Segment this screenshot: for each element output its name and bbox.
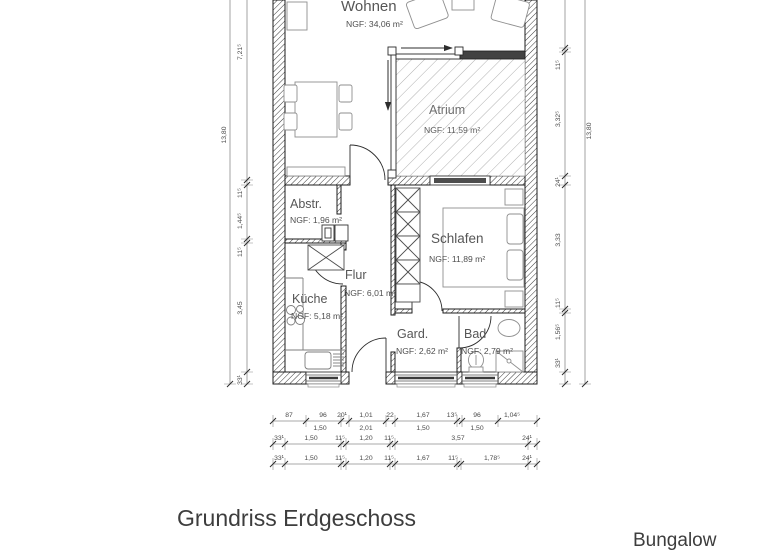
outer-wall-bottom <box>386 372 395 384</box>
floor-plan-drawing: 87 96 20¹ 1,01 22 1,67 13⁵ 96 1,04⁵ 1,50… <box>0 0 768 560</box>
kitchen-window <box>306 372 341 387</box>
washbasin <box>498 320 520 337</box>
dim-label: 24¹ <box>522 435 533 442</box>
room-area-abstellraum: NGF: 1,96 m² <box>290 215 342 225</box>
dim-label: 1,56⁵ <box>555 324 562 340</box>
room-area-schlafen: NGF: 11,89 m² <box>429 254 485 264</box>
dim-label: 1,04⁵ <box>504 412 520 419</box>
dim-label: 1,44⁵ <box>237 213 244 229</box>
room-label-garderobe: Gard. <box>397 327 428 341</box>
dim-label: 11⁵ <box>237 188 244 198</box>
atrium-fixed-glazing <box>460 51 525 59</box>
sideboard <box>287 2 307 30</box>
outer-wall-bottom <box>273 372 306 384</box>
dim-label: 3,32⁵ <box>555 111 562 127</box>
pillow <box>507 214 523 244</box>
armchair <box>490 0 530 28</box>
garderobe-window <box>395 372 457 387</box>
room-area-garderobe: NGF: 2,62 m² <box>396 346 448 356</box>
room-label-atrium: Atrium <box>429 103 465 117</box>
room-area-kueche: NGF: 5,18 m² <box>291 311 343 321</box>
chair <box>284 85 297 102</box>
bedroom-window-glass <box>434 178 486 183</box>
dim-label: 11⁵ <box>384 455 394 462</box>
dim-label: 22 <box>386 412 394 419</box>
dim-label: 11⁵ <box>335 455 345 462</box>
outer-wall-left <box>273 0 285 384</box>
door-entrance <box>352 338 386 372</box>
dim-label: 1,67 <box>416 412 429 419</box>
dim-label: 33¹ <box>274 435 285 442</box>
interior-wall <box>395 309 412 313</box>
atrium-hatch <box>396 59 525 176</box>
dim-label: 96 <box>473 412 481 419</box>
room-label-bad: Bad <box>464 327 486 341</box>
dim-label: 3,45 <box>237 301 244 314</box>
lowboard <box>287 167 345 176</box>
room-area-wohnen: NGF: 34,06 m² <box>346 19 403 29</box>
dim-label: 1,67 <box>416 455 429 462</box>
side-table <box>452 0 474 10</box>
dim-label: 96 <box>319 412 327 419</box>
atrium-post <box>388 47 396 55</box>
door-wohnen-flur <box>350 145 385 180</box>
dim-label: 7,21⁵ <box>237 44 244 60</box>
room-label-abstellraum: Abstr. <box>290 197 322 211</box>
dim-label: 11⁵ <box>237 247 244 257</box>
dim-label: 1,50 <box>470 425 483 432</box>
interior-wall <box>391 352 395 372</box>
dim-label: 33¹ <box>274 455 285 462</box>
pillow <box>507 250 523 280</box>
dim-label: 11⁵ <box>335 435 345 442</box>
atrium-post <box>388 170 396 178</box>
shaft <box>308 245 344 270</box>
chair <box>339 113 352 130</box>
dim-label: 3,33 <box>555 233 562 246</box>
dim-label: 20¹ <box>337 412 348 419</box>
interior-wall <box>341 286 346 372</box>
kitchen-sink <box>305 352 331 369</box>
room-area-bad: NGF: 2,79 m² <box>461 346 513 356</box>
interior-wall <box>285 176 350 185</box>
dim-label: 24¹ <box>522 455 533 462</box>
armchair <box>406 0 449 29</box>
dim-label: 1,20 <box>359 455 372 462</box>
interior-wall <box>337 185 341 214</box>
dim-label: 87 <box>285 412 293 419</box>
floor-plan-canvas: 87 96 20¹ 1,01 22 1,67 13⁵ 96 1,04⁵ 1,50… <box>0 0 768 560</box>
interior-wall <box>490 176 525 185</box>
door-abstellraum <box>322 225 348 241</box>
dim-label: 11⁵ <box>448 455 458 462</box>
outer-wall-bottom <box>498 372 537 384</box>
interior-wall <box>443 309 525 313</box>
atrium-glass-top <box>396 54 460 59</box>
nightstand <box>505 189 523 205</box>
dim-label: 1,78⁵ <box>484 455 500 462</box>
dim-label: 11⁵ <box>555 298 562 308</box>
room-area-atrium: NGF: 11,59 m² <box>424 125 480 135</box>
dim-label: 13⁵ <box>447 412 458 419</box>
wardrobe <box>396 188 420 302</box>
plan-title: Grundriss Erdgeschoss <box>177 505 416 532</box>
chair <box>284 113 297 130</box>
dim-label: 11⁵ <box>384 435 394 442</box>
outer-wall-bottom <box>341 372 349 384</box>
dim-label: 1,50 <box>304 435 317 442</box>
atrium-post <box>455 47 463 55</box>
room-label-wohnen: Wohnen <box>341 0 397 15</box>
room-area-flur: NGF: 6,01 m² <box>344 288 396 298</box>
dim-label: 1,50 <box>416 425 429 432</box>
outer-wall-bottom <box>457 372 462 384</box>
dim-label: 24¹ <box>555 176 562 187</box>
plan-subtitle: Bungalow <box>633 530 716 552</box>
chair <box>339 85 352 102</box>
bath-window <box>462 372 498 387</box>
dim-label: 33¹ <box>237 374 244 385</box>
dim-label: 1,20 <box>359 435 372 442</box>
room-label-kueche: Küche <box>292 292 327 306</box>
dim-label: 11⁵ <box>555 60 562 70</box>
dim-label: 1,01 <box>359 412 372 419</box>
dim-total-left: 13,80 <box>221 126 228 143</box>
dining-table <box>295 82 337 137</box>
dim-total-right: 13,80 <box>586 122 593 139</box>
room-label-schlafen: Schlafen <box>431 231 484 246</box>
atrium-glass-left <box>391 54 396 176</box>
dim-label: 33¹ <box>555 357 562 368</box>
dim-label: 3,57 <box>451 435 464 442</box>
dim-label: 2,01 <box>359 425 372 432</box>
dim-label: 1,50 <box>313 425 326 432</box>
dim-label: 1,50 <box>304 455 317 462</box>
outer-wall-right <box>525 0 537 384</box>
room-label-flur: Flur <box>345 268 367 282</box>
nightstand <box>505 291 523 307</box>
